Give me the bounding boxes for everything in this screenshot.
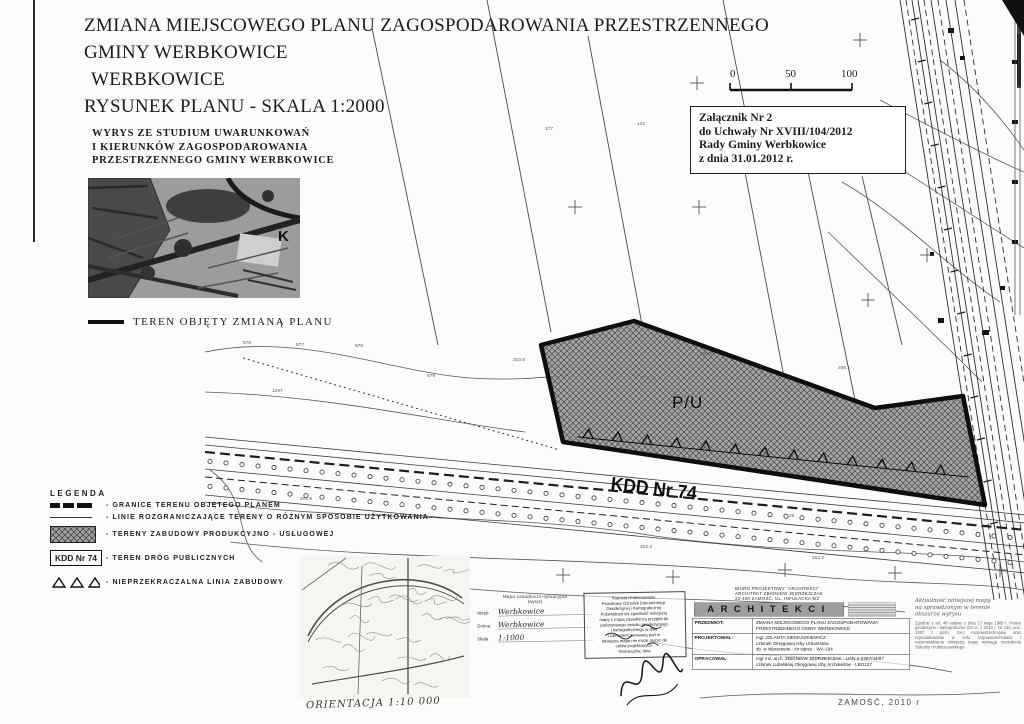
title-line-1: ZMIANA MIEJSCOWEGO PLANU ZAGOSPODAROWANI… — [84, 12, 769, 39]
triangle-symbol — [50, 576, 100, 589]
row-value-line: zb. w Warszawie - Nr wpisu - WA-194 — [756, 647, 907, 653]
orientation-map — [300, 556, 470, 698]
parcel-label: 1297 — [272, 389, 283, 394]
legend-item-boundary: - GRANICE TERENU OBJĘTEGO PLANEM — [50, 502, 429, 509]
architekci-header: BIURO PROJEKTOWY "ARCHITEKCI" ARCHITEKT … — [735, 586, 910, 601]
validity-line: obszarze wyrysu — [915, 611, 1021, 618]
survey-row-label: Skala — [477, 637, 498, 642]
architekci-banner: ARCHITEKCI — [694, 603, 844, 617]
legend-item-label: - TERENY ZABUDOWY PRODUKCYJNO - USŁUGOWE… — [106, 531, 334, 538]
parcel-label: 577 — [296, 343, 304, 348]
study-excerpt-heading: WYRYS ZE STUDIUM UWARUNKOWAŃ I KIERUNKÓW… — [92, 127, 334, 168]
wyrys-line: I KIERUNKÓW ZAGOSPODAROWANIA — [92, 141, 334, 155]
footer-place-date: ZAMOŚĆ, 2010 r — [838, 698, 920, 707]
legend-item-dividing-lines: - LINIE ROZGRANICZAJĄCE TERENY O RÓŻNYM … — [50, 514, 429, 521]
scan-edge-artifact — [33, 0, 35, 242]
pu-zone-label: P/U — [672, 393, 703, 413]
boundary-line-symbol — [88, 320, 124, 324]
survey-row-label: obręb — [477, 611, 498, 616]
architekci-header-line: 22-400 ZAMOŚĆ, UL. INFUŁACKA 9/2 — [735, 596, 910, 601]
parcel-label: 204.2 — [812, 556, 824, 561]
wyrys-line: PRZESTRZENNEGO GMINY WERBKOWICE — [92, 154, 334, 168]
scale-tick-0: 0 — [730, 68, 736, 80]
annex-line: do Uchwały Nr XVIII/104/2012 — [699, 126, 897, 140]
scanned-plan-page: 1771225785775785791297203.6205.8206.1202… — [0, 0, 1024, 724]
wyrys-line: WYRYS ZE STUDIUM UWARUNKOWAŃ — [92, 127, 334, 141]
parcel-label: 122 — [637, 122, 645, 127]
study-map-label-k: K — [278, 228, 289, 245]
legal-note-text: Zgodnie z art. 48 ustawy z dnia 17 maja … — [915, 621, 1021, 650]
map-validity-note: Aktualność niniejszej mapy na sprawdzony… — [915, 597, 1021, 697]
parcel-label: 177 — [545, 127, 553, 132]
stamp-mini-box — [848, 603, 896, 617]
parcel-label: 203.6 — [513, 358, 525, 363]
project-info-table: PRZEDMIOT: ZMIANA MIEJSCOWEGO PLANU ZAGO… — [692, 618, 910, 670]
parcel-label: 205.8 — [700, 352, 712, 357]
dividing-line-symbol — [50, 517, 92, 518]
legend-item-label: - GRANICE TERENU OBJĘTEGO PLANEM — [106, 502, 281, 509]
row-label: OPRACOWAŁ: — [693, 654, 754, 669]
table-row: PRZEDMIOT: ZMIANA MIEJSCOWEGO PLANU ZAGO… — [693, 619, 910, 634]
survey-form-subtitle: (wyrys) — [477, 599, 593, 604]
scale-bar-line — [727, 81, 863, 95]
scale-bar: 0 50 100 — [727, 68, 863, 100]
kdd-symbol-box: KDD Nr 74 — [50, 550, 102, 566]
hatch-symbol — [50, 526, 96, 543]
survey-row-value-handwritten: Werbkowice — [498, 619, 593, 629]
legend-item-pu-areas: - TERENY ZABUDOWY PRODUKCYJNO - USŁUGOWE… — [50, 526, 429, 543]
boundary-symbol — [50, 503, 92, 508]
scale-tick-100: 100 — [841, 68, 858, 80]
annex-line: z dnia 31.01.2012 r. — [699, 153, 897, 167]
title-line-2: GMINY WERBKOWICE — [84, 39, 769, 66]
annex-line: Rady Gminy Werbkowice — [699, 139, 897, 153]
parcel-label: 578 — [243, 341, 251, 346]
row-label: PRZEDMIOT: — [693, 619, 754, 634]
parcel-label: 26 — [789, 514, 794, 519]
survey-row-label: Gmina — [477, 624, 498, 629]
teren-objety-label: TEREN OBJĘTY ZMIANĄ PLANU — [133, 316, 333, 328]
scale-tick-50: 50 — [785, 68, 796, 80]
row-value-line: członek Lubelskiej Okręgowej Izby Archit… — [756, 662, 907, 668]
survey-row: Gmina Werbkowice — [477, 620, 593, 629]
parcel-label: 579 — [427, 374, 435, 379]
teren-objety-key: TEREN OBJĘTY ZMIANĄ PLANU — [88, 316, 333, 328]
validity-line: Aktualność niniejszej mapy — [915, 597, 1021, 604]
survey-row: Skala 1:1000 — [477, 633, 593, 642]
legend-item-label: - TEREN DRÓG PUBLICZNYCH — [106, 555, 235, 562]
survey-map-form: Mapa zasadniczo-sytuacyjna (wyrys) obręb… — [477, 594, 593, 684]
legend-item-label: - NIEPRZEKRACZALNA LINIA ZABUDOWY — [106, 579, 284, 586]
legend-heading: LEGENDA — [50, 489, 429, 498]
title-line-4: RYSUNEK PLANU - SKALA 1:2000 — [84, 93, 769, 120]
title-line-3: WERBKOWICE — [84, 66, 769, 93]
survey-row-value-handwritten: Werbkowice — [498, 606, 593, 616]
annex-reference-box: Załącznik Nr 2 do Uchwały Nr XVIII/104/2… — [690, 106, 906, 174]
annex-line: Załącznik Nr 2 — [699, 112, 897, 126]
survey-row-value-handwritten: 1:1000 — [498, 632, 593, 642]
parcel-label: 578 — [355, 344, 363, 349]
parcel-label: 206.1 — [838, 366, 850, 371]
study-excerpt-map — [88, 178, 300, 298]
map-title: ZMIANA MIEJSCOWEGO PLANU ZAGOSPODAROWANI… — [84, 12, 769, 120]
row-label: PROJEKTOWAŁ: — [693, 634, 754, 654]
scan-strip-artifact — [1017, 34, 1021, 86]
survey-row: obręb Werbkowice — [477, 607, 593, 616]
validity-line: na sprawdzonym w terenie — [915, 604, 1021, 611]
row-value-line: PRZESTRZENNEGO GMINY WERBKOWICE — [756, 626, 907, 632]
parcel-label: 202.3 — [640, 545, 652, 550]
table-row: PROJEKTOWAŁ: mgr JOLANTA SIEMASZKIEWICZ … — [693, 633, 910, 654]
legend-item-label: - LINIE ROZGRANICZAJĄCE TERENY O RÓŻNYM … — [106, 514, 429, 521]
table-row: OPRACOWAŁ: mgr inż. arch. ZBIGNIEW JĘDRZ… — [693, 654, 910, 669]
architekci-stamp: BIURO PROJEKTOWY "ARCHITEKCI" ARCHITEKT … — [692, 586, 910, 682]
